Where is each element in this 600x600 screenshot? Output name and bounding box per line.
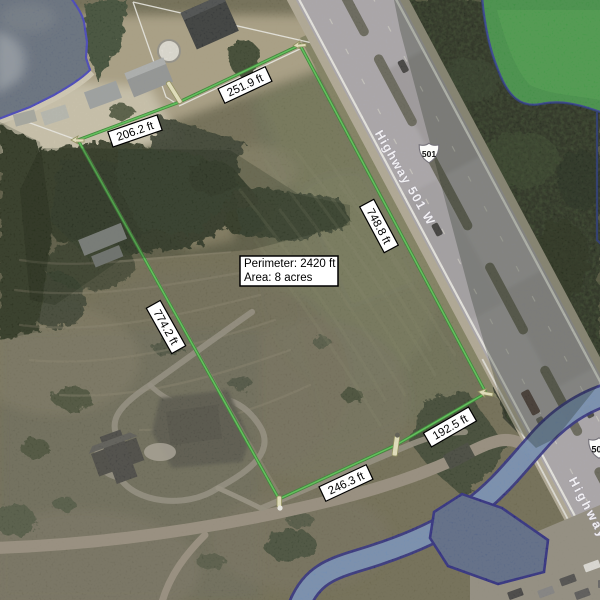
svg-text:501: 501 (422, 149, 436, 159)
svg-text:Perimeter: 2420 ft: Perimeter: 2420 ft (244, 258, 336, 270)
svg-text:Area: 8 acres: Area: 8 acres (244, 272, 313, 284)
svg-text:501: 501 (591, 445, 600, 455)
